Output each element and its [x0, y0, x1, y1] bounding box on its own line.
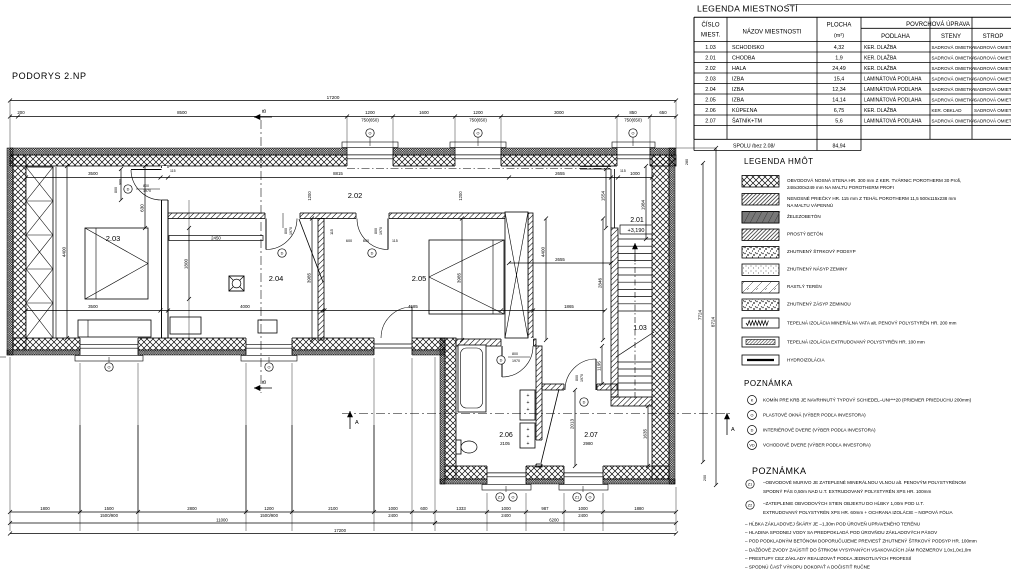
svg-text:RASTLÝ TERÉN: RASTLÝ TERÉN: [787, 283, 822, 289]
svg-text:200: 200: [703, 475, 707, 481]
svg-text:LAMINÁTOVÁ PODLAHA: LAMINÁTOVÁ PODLAHA: [864, 86, 922, 93]
svg-text:1.03: 1.03: [705, 45, 716, 51]
svg-text:O: O: [369, 131, 372, 135]
svg-text:–OBVODOVÉ MURIVO JE ZATEPLENÉ: –OBVODOVÉ MURIVO JE ZATEPLENÉ MINERÁLNOU…: [763, 479, 966, 485]
svg-text:O: O: [268, 365, 271, 369]
svg-text:2.06: 2.06: [705, 108, 716, 114]
svg-text:3985: 3985: [307, 272, 312, 283]
svg-text:1200: 1200: [473, 110, 483, 115]
svg-text:2.01: 2.01: [630, 217, 644, 224]
svg-text:O: O: [632, 131, 635, 135]
svg-text:+: +: [527, 393, 530, 399]
svg-text:D: D: [751, 428, 754, 432]
svg-text:987: 987: [541, 506, 549, 511]
svg-text:600: 600: [420, 506, 428, 511]
svg-text:3500: 3500: [88, 304, 98, 309]
svg-text:14,14: 14,14: [832, 97, 846, 103]
svg-text:115: 115: [392, 239, 398, 243]
svg-text:17200: 17200: [327, 95, 340, 100]
svg-text:+: +: [527, 434, 530, 440]
svg-text:SADROVÁ OMIETKA: SADROVÁ OMIETKA: [932, 44, 976, 50]
svg-text:248x300x249 mm NA MALTU POROTH: 248x300x249 mm NA MALTU POROTHERM PROFI: [787, 185, 894, 190]
svg-text:1000: 1000: [630, 171, 640, 176]
svg-text:2980: 2980: [583, 441, 593, 446]
svg-text:8815: 8815: [333, 171, 343, 176]
svg-text:SADROVÁ OMIETKA: SADROVÁ OMIETKA: [974, 65, 1011, 71]
svg-text:+: +: [527, 400, 530, 406]
svg-text:O: O: [589, 495, 592, 499]
svg-text:12,34: 12,34: [832, 87, 846, 93]
svg-text:Z1: Z1: [748, 482, 752, 486]
svg-text:SADROVÁ OMIETKA: SADROVÁ OMIETKA: [932, 75, 976, 81]
svg-text:SADROVÁ OMIETKA: SADROVÁ OMIETKA: [932, 65, 976, 71]
svg-text:SADROVÁ OMIETKA: SADROVÁ OMIETKA: [974, 107, 1011, 113]
svg-text:1000: 1000: [501, 506, 511, 511]
svg-text:15,4: 15,4: [834, 76, 845, 82]
svg-text:SPODNÝ PÁS 0,50m NAD U.T. EXTR: SPODNÝ PÁS 0,50m NAD U.T. EXTRUDOVANÝ PO…: [763, 488, 931, 494]
svg-text:2655: 2655: [555, 257, 565, 262]
svg-text:850: 850: [629, 110, 637, 115]
svg-text:1500/900: 1500/900: [100, 513, 119, 518]
svg-text:PODLAHA: PODLAHA: [881, 34, 910, 40]
svg-text:2655: 2655: [555, 171, 565, 176]
svg-text:11000: 11000: [216, 517, 228, 522]
svg-text:POVRCHOVÁ ÚPRAVA: POVRCHOVÁ ÚPRAVA: [906, 21, 970, 28]
svg-text:800: 800: [284, 228, 288, 234]
svg-text:HYDROIZOLÁCIA: HYDROIZOLÁCIA: [787, 357, 825, 363]
svg-text:800: 800: [143, 184, 149, 188]
svg-text:630: 630: [140, 204, 145, 212]
svg-text:O: O: [108, 365, 111, 369]
svg-text:1200: 1200: [264, 506, 274, 511]
svg-text:2.02: 2.02: [705, 66, 716, 72]
svg-text:800: 800: [374, 228, 378, 234]
svg-text:– DAŽĎOVÉ ZVODY ZAÚSTIŤ DO ŠTR: – DAŽĎOVÉ ZVODY ZAÚSTIŤ DO ŠTRKOM VYSYPA…: [745, 545, 971, 552]
svg-text:+3,190: +3,190: [628, 228, 645, 234]
svg-text:1800: 1800: [184, 258, 189, 269]
svg-text:K: K: [751, 398, 754, 402]
svg-text:1200: 1200: [458, 191, 463, 201]
svg-text:1195: 1195: [597, 361, 602, 371]
svg-text:A: A: [355, 420, 359, 426]
svg-text:KER. DLAŽBA: KER. DLAŽBA: [864, 106, 897, 114]
svg-text:24,49: 24,49: [832, 66, 846, 72]
svg-text:1635: 1635: [643, 428, 648, 439]
svg-text:– HĹBKA ZÁKLADOVEJ ŠKÁRY JE –1: – HĹBKA ZÁKLADOVEJ ŠKÁRY JE –1,30m POD Ú…: [745, 521, 920, 527]
svg-text:2.02: 2.02: [348, 191, 363, 200]
svg-text:IZBA: IZBA: [732, 97, 744, 103]
svg-text:2.01: 2.01: [705, 55, 716, 61]
svg-text:5,6: 5,6: [835, 118, 843, 124]
svg-text:PODORYS 2.NP: PODORYS 2.NP: [12, 71, 87, 81]
svg-text:8724: 8724: [711, 316, 716, 327]
svg-text:1800: 1800: [40, 506, 50, 511]
svg-text:1970: 1970: [512, 359, 520, 363]
svg-text:3985: 3985: [457, 272, 462, 283]
svg-text:2.04: 2.04: [705, 87, 716, 93]
svg-text:2800: 2800: [187, 506, 197, 511]
svg-text:2400: 2400: [501, 513, 511, 518]
svg-text:LAMINÁTOVÁ PODLAHA: LAMINÁTOVÁ PODLAHA: [864, 117, 922, 124]
svg-text:KER. DLAŽBA: KER. DLAŽBA: [864, 43, 897, 51]
svg-text:OBVODOVÁ NOSNÁ STENA HR. 300 m: OBVODOVÁ NOSNÁ STENA HR. 300 mm Z KER. T…: [787, 177, 961, 183]
svg-text:PLASTOVÉ OKNÁ (VÝBER PODĽA INV: PLASTOVÉ OKNÁ (VÝBER PODĽA INVESTORA): [763, 412, 866, 418]
svg-text:ČÍSLO: ČÍSLO: [701, 22, 719, 29]
svg-text:LAMINÁTOVÁ PODLAHA: LAMINÁTOVÁ PODLAHA: [864, 96, 922, 103]
svg-text:1000: 1000: [388, 506, 398, 511]
svg-text:POZNÁMKA: POZNÁMKA: [752, 466, 807, 476]
svg-text:O: O: [477, 131, 480, 135]
svg-text:KER. DLAŽBA: KER. DLAŽBA: [864, 53, 897, 61]
svg-text:KER. OBKLAD: KER. OBKLAD: [932, 108, 963, 113]
svg-text:ZHUTNENÝ ZÁSYP ZEMINOU: ZHUTNENÝ ZÁSYP ZEMINOU: [787, 301, 851, 307]
svg-text:4,32: 4,32: [834, 45, 845, 51]
svg-text:SCHODISKO: SCHODISKO: [732, 45, 764, 51]
svg-text:VCHODOVÉ DVERE (VÝBER PODĽA IN: VCHODOVÉ DVERE (VÝBER PODĽA INVESTORA): [763, 442, 871, 448]
svg-text:LAMINÁTOVÁ PODLAHA: LAMINÁTOVÁ PODLAHA: [864, 75, 922, 82]
svg-text:750(650): 750(650): [361, 118, 379, 123]
svg-text:+: +: [527, 441, 530, 447]
svg-text:1500/900: 1500/900: [260, 513, 279, 518]
svg-text:+: +: [527, 407, 530, 413]
svg-text:D: D: [500, 358, 503, 362]
svg-text:750(650): 750(650): [624, 118, 642, 123]
svg-text:SADROVÁ OMIETKA: SADROVÁ OMIETKA: [974, 54, 1011, 60]
svg-text:PROSTÝ BETÓN: PROSTÝ BETÓN: [787, 231, 823, 237]
svg-text:1970: 1970: [289, 227, 293, 235]
svg-text:ZHUTNENÝ ŠTRKOVÝ PODSYP: ZHUTNENÝ ŠTRKOVÝ PODSYP: [787, 248, 856, 254]
svg-text:1200: 1200: [307, 191, 312, 201]
svg-text:D: D: [281, 251, 284, 255]
svg-text:SPOLU /bez 2.08/: SPOLU /bez 2.08/: [733, 144, 775, 150]
svg-text:KOMÍN PRE KRB JE NAVRHNUTÝ TYP: KOMÍN PRE KRB JE NAVRHNUTÝ TYPOVÝ SCHIED…: [763, 397, 972, 403]
svg-text:ŽELEZOBETÓN: ŽELEZOBETÓN: [787, 212, 821, 219]
svg-text:1000: 1000: [578, 506, 588, 511]
svg-text:7724: 7724: [698, 309, 703, 320]
svg-text:1970: 1970: [379, 227, 383, 235]
svg-text:STENY: STENY: [941, 34, 961, 40]
svg-text:TEPELNÁ IZOLÁCIA MINERÁLNA VAT: TEPELNÁ IZOLÁCIA MINERÁLNA VATA alt. PEN…: [787, 320, 957, 326]
svg-text:MIEST.: MIEST.: [701, 33, 721, 39]
svg-text:EXTRUDOVANÝ POLYSTYRÉN XPS HR.: EXTRUDOVANÝ POLYSTYRÉN XPS HR. 60mm + OC…: [763, 509, 954, 515]
svg-text:2.03: 2.03: [705, 76, 716, 82]
svg-text:1880: 1880: [634, 506, 644, 511]
svg-text:2.06: 2.06: [499, 432, 513, 439]
svg-text:D: D: [583, 400, 586, 404]
svg-text:KÚPEĽNA: KÚPEĽNA: [732, 107, 758, 114]
svg-text:2.04: 2.04: [269, 274, 284, 283]
svg-text:– SPODNÚ ČASŤ VÝKOPU DOKOPAŤ A: – SPODNÚ ČASŤ VÝKOPU DOKOPAŤ A DOČISTIŤ …: [745, 563, 870, 570]
svg-text:SADROVÁ OMIETKA: SADROVÁ OMIETKA: [932, 117, 976, 123]
svg-text:650: 650: [363, 239, 369, 243]
svg-text:3500: 3500: [88, 171, 98, 176]
svg-text:1500: 1500: [104, 506, 114, 511]
svg-text:A: A: [731, 427, 735, 433]
svg-text:6200: 6200: [549, 517, 559, 522]
svg-text:280: 280: [685, 159, 689, 165]
svg-text:LEGENDA MIESTNOSTÍ: LEGENDA MIESTNOSTÍ: [697, 4, 798, 14]
svg-text:STROP: STROP: [983, 34, 1004, 40]
svg-text:2.05: 2.05: [412, 274, 427, 283]
svg-text:SADROVÁ OMIETKA: SADROVÁ OMIETKA: [932, 96, 976, 102]
svg-text:HALA: HALA: [732, 66, 746, 72]
svg-text:+: +: [527, 427, 530, 433]
svg-text:4585: 4585: [408, 304, 418, 309]
svg-text:4000: 4000: [240, 304, 250, 309]
svg-text:1984: 1984: [641, 199, 646, 210]
svg-text:2013: 2013: [570, 418, 575, 429]
svg-text:800: 800: [575, 375, 579, 381]
svg-text:SADROVÁ OMIETKA: SADROVÁ OMIETKA: [974, 86, 1011, 92]
svg-text:1554: 1554: [601, 190, 606, 201]
svg-text:IZBA: IZBA: [732, 87, 744, 93]
svg-text:O: O: [751, 413, 754, 417]
svg-text:115: 115: [170, 169, 176, 173]
svg-text:2105: 2105: [500, 441, 510, 446]
svg-text:115: 115: [330, 229, 334, 235]
svg-text:2.03: 2.03: [106, 234, 121, 243]
svg-text:KER. DLAŽBA: KER. DLAŽBA: [864, 64, 897, 72]
svg-text:800: 800: [114, 187, 118, 193]
svg-text:1,9: 1,9: [835, 55, 843, 61]
svg-text:17200: 17200: [334, 528, 347, 533]
svg-text:750(650): 750(650): [469, 118, 487, 123]
svg-text:– PRESTUPY CEZ ZÁKLADY REALIZO: – PRESTUPY CEZ ZÁKLADY REALIZOVAŤ PODĽA …: [745, 554, 912, 561]
svg-text:2100: 2100: [328, 506, 338, 511]
svg-text:2400: 2400: [388, 513, 398, 518]
svg-text:SADROVÁ OMIETKA: SADROVÁ OMIETKA: [932, 54, 976, 60]
svg-text:8500: 8500: [177, 110, 187, 115]
svg-text:INTERIÉROVÉ DVERE (VÝBER PODĽA: INTERIÉROVÉ DVERE (VÝBER PODĽA INVESTORA…: [763, 427, 876, 433]
svg-text:2.07: 2.07: [584, 432, 598, 439]
svg-text:NÁZOV MIESTNOSTI: NÁZOV MIESTNOSTI: [742, 29, 801, 36]
svg-text:O: O: [512, 495, 515, 499]
svg-text:2846: 2846: [598, 277, 603, 288]
svg-text:SADROVÁ OMIETKA: SADROVÁ OMIETKA: [974, 96, 1011, 102]
svg-text:SADROVÁ OMIETKA: SADROVÁ OMIETKA: [932, 86, 976, 92]
svg-text:6,75: 6,75: [834, 108, 845, 114]
svg-text:NENOSNÉ PRIEČKY HR. 115 mm Z T: NENOSNÉ PRIEČKY HR. 115 mm Z TEHÁL POROT…: [787, 195, 956, 201]
svg-text:600: 600: [346, 239, 352, 243]
svg-text:VD: VD: [749, 443, 755, 447]
svg-text:TEPELNÁ IZOLÁCIA EXTRUDOVANÝ P: TEPELNÁ IZOLÁCIA EXTRUDOVANÝ POLYSTYRÉN …: [787, 339, 925, 345]
svg-text:NA MALTU VÁPENNÚ: NA MALTU VÁPENNÚ: [787, 202, 833, 208]
svg-text:115: 115: [620, 169, 626, 173]
svg-text:Z2: Z2: [748, 503, 752, 507]
svg-text:Z1: Z1: [498, 495, 502, 499]
svg-text:PLOCHA: PLOCHA: [827, 23, 852, 29]
svg-text:LEGENDA HMÔT: LEGENDA HMÔT: [744, 157, 814, 166]
svg-text:B: B: [262, 380, 268, 384]
svg-text:1970: 1970: [580, 374, 584, 382]
svg-text:– HLADINA SPODNEJ VODY SA PRED: – HLADINA SPODNEJ VODY SA PREDPOKLADÁ PO…: [745, 529, 938, 535]
svg-text:Z1: Z1: [575, 495, 579, 499]
svg-text:1865: 1865: [564, 304, 574, 309]
svg-text:SADROVÁ OMIETKA: SADROVÁ OMIETKA: [974, 117, 1011, 123]
svg-text:900: 900: [119, 179, 123, 185]
svg-text:2400: 2400: [578, 513, 588, 518]
svg-text:800: 800: [512, 352, 518, 356]
svg-text:SADROVÁ OMIETKA: SADROVÁ OMIETKA: [974, 75, 1011, 81]
svg-text:–ZATEPLENIE OBVODOVÝCH STIEN O: –ZATEPLENIE OBVODOVÝCH STIEN OBJEKTU DO …: [763, 500, 924, 506]
svg-text:84,94: 84,94: [833, 144, 846, 150]
svg-text:1970: 1970: [143, 189, 151, 193]
svg-text:D: D: [371, 251, 374, 255]
svg-text:CHODBA: CHODBA: [732, 55, 755, 61]
svg-text:SADROVÁ OMIETKA: SADROVÁ OMIETKA: [974, 44, 1011, 50]
svg-text:200: 200: [17, 110, 25, 115]
svg-text:1600: 1600: [419, 110, 429, 115]
svg-text:(m²): (m²): [834, 33, 844, 39]
svg-text:POZNÁMKA: POZNÁMKA: [744, 379, 793, 388]
svg-text:B: B: [262, 109, 268, 113]
svg-text:ŠATNÍK+TM: ŠATNÍK+TM: [732, 117, 763, 124]
svg-text:3000: 3000: [554, 110, 564, 115]
svg-text:– POD PODKLADNÝM BETÓNOM DOPOR: – POD PODKLADNÝM BETÓNOM DOPORUČUJEME PR…: [745, 537, 977, 544]
svg-text:ZHUTNENÝ NÁSYP ZEMINY: ZHUTNENÝ NÁSYP ZEMINY: [787, 266, 847, 272]
svg-text:1200: 1200: [365, 110, 375, 115]
svg-text:2450: 2450: [211, 235, 221, 240]
svg-text:2.05: 2.05: [705, 97, 716, 103]
svg-text:D: D: [127, 187, 130, 191]
svg-text:4400: 4400: [62, 246, 67, 257]
svg-text:650: 650: [659, 110, 667, 115]
svg-text:1.03: 1.03: [633, 325, 647, 332]
svg-text:4400: 4400: [541, 246, 546, 257]
svg-text:2.07: 2.07: [705, 118, 716, 124]
svg-text:IZBA: IZBA: [732, 76, 744, 82]
svg-text:1333: 1333: [456, 506, 466, 511]
